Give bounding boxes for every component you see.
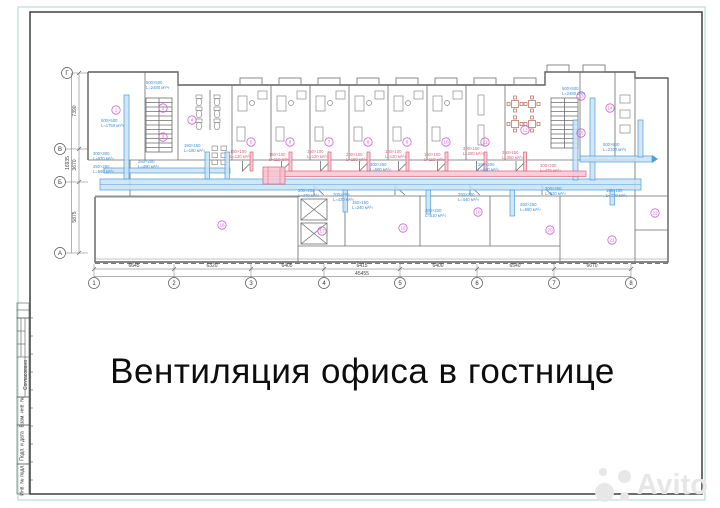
supply-duct-flow: L=2480 м³/ч <box>562 91 585 96</box>
ventilation-plan-svg: Согласовано Взам. инв. № Подп. и дата Ин… <box>0 0 720 508</box>
exhaust-duct-flow: L=110 м³/ч <box>424 157 444 162</box>
exhaust-duct-flow: L=470 м³/ч <box>540 168 561 173</box>
supply-duct-flow: L=2480 м³/ч <box>146 85 169 90</box>
supply-duct-flow: L=440 м³/ч <box>458 197 479 202</box>
page-title: Вентиляция офиса в гостнице <box>110 352 615 392</box>
room-number: 2 <box>162 106 165 111</box>
exhaust-duct-flow: L=120 м³/ч <box>307 154 328 159</box>
axis-markers: 12345678ГВБА <box>55 68 637 289</box>
dimension-value: 6645 <box>128 263 139 269</box>
supply-duct-flow: L=680 м³/ч <box>520 207 541 212</box>
stamp-label-agreed: Согласовано <box>23 360 29 390</box>
supply-duct-flow: L=440 м³/ч <box>478 167 499 172</box>
dimension-value: 3670 <box>72 159 78 170</box>
toilet-icon <box>214 119 220 130</box>
room-number: 10 <box>443 140 449 145</box>
stamp-label-cell-2: Инв. № подл. <box>20 464 26 495</box>
stamp-label-cell-0: Взам. инв. № <box>20 397 26 428</box>
drawing-sheet: Согласовано Взам. инв. № Подп. и дата Ин… <box>0 0 720 508</box>
room-number: 15 <box>578 131 584 136</box>
exhaust-duct-flow: L=110 м³/ч <box>269 157 289 162</box>
window-bays <box>240 65 605 85</box>
axis-letter: А <box>58 251 62 257</box>
duct-arrow-icon <box>652 155 658 163</box>
toilet-icon <box>196 95 202 106</box>
room-number: 4 <box>191 118 194 123</box>
room-number: 16 <box>219 223 225 228</box>
room-number: 1 <box>115 108 118 113</box>
room-number: 14 <box>607 106 613 111</box>
room-number: 7 <box>328 140 331 145</box>
supply-duct-flow: L=230 м³/ч <box>606 193 627 198</box>
meeting-table-icon <box>524 96 540 112</box>
toilet-icon <box>214 95 220 106</box>
room-number: 3 <box>162 135 165 140</box>
room-number: 20 <box>547 228 553 233</box>
toilet-icon <box>196 107 202 118</box>
supply-duct-flow: L=510 м³/ч <box>425 213 446 218</box>
supply-duct-flow: L=2100 м³/ч <box>603 147 626 152</box>
toilet-icon <box>196 119 202 130</box>
supply-duct-flow: L=470 м³/ч <box>298 193 319 198</box>
dimension-value: 6400 <box>432 263 443 269</box>
dimension-value: 5875 <box>72 211 78 222</box>
exhaust-duct-flow: L=120 м³/ч <box>230 154 251 159</box>
exhaust-fan-unit <box>263 167 285 184</box>
room-number: 5 <box>250 140 253 145</box>
avito-watermark: Avito <box>595 468 708 502</box>
toilet-icon <box>214 107 220 118</box>
dimension-value: 6405 <box>281 263 292 269</box>
room-number: 21 <box>609 238 615 243</box>
supply-duct-flow: L=1750 м³/ч <box>101 123 124 128</box>
exhaust-duct-flow: L=120 м³/ч <box>385 154 406 159</box>
shaft-boxes <box>301 199 327 244</box>
supply-duct-flow: L=490 м³/ч <box>138 164 159 169</box>
exhaust-duct-flow: L=150 м³/ч <box>346 157 367 162</box>
dimension-value: 6415 <box>356 263 367 269</box>
stamp-edge-ticks <box>31 318 34 480</box>
sheet-outer-border <box>18 7 705 500</box>
axis-letter: Б <box>58 180 62 186</box>
wc-fixtures <box>196 95 227 165</box>
supply-duct-flow: L=620 м³/ч <box>545 191 566 196</box>
supply-duct-flow: L=420 м³/ч <box>333 197 354 202</box>
exhaust-duct-flow: L=280 м³/ч <box>463 151 484 156</box>
room-number: 9 <box>406 140 409 145</box>
supply-duct-flow: L=180 м³/ч <box>184 148 205 153</box>
room-number: 17 <box>319 229 325 234</box>
dimension-total: 45455 <box>355 271 369 277</box>
supply-duct-flow: L=560 м³/ч <box>93 169 114 174</box>
room-number: 8 <box>367 140 370 145</box>
meeting-table-icon <box>507 96 523 112</box>
exhaust-duct-flow: L=350 м³/ч <box>502 155 523 160</box>
room-number: 19 <box>475 210 481 215</box>
avito-wordmark: Avito <box>637 471 708 500</box>
avito-logo-icon <box>595 468 633 502</box>
room-number: 22 <box>652 211 658 216</box>
supply-duct-flow: L=590 м³/ч <box>370 167 391 172</box>
dimension-value: 6670 <box>586 263 597 269</box>
supply-duct-flow: L=870 м³/ч <box>93 156 114 161</box>
room-number: 12 <box>522 128 528 133</box>
supply-duct-flow: L=240 м³/ч <box>352 205 373 210</box>
stamp-label-cell-1: Подп. и дата <box>20 431 26 461</box>
room-furniture <box>237 91 630 145</box>
dimension-value: 7390 <box>72 105 78 116</box>
room-number: 6 <box>289 140 292 145</box>
dimension-value: 6540 <box>509 263 520 269</box>
supply-ducts-blue <box>100 95 658 216</box>
axis-letter: В <box>58 147 62 153</box>
dimension-total: 16935 <box>65 156 71 170</box>
dimension-value: 6320 <box>206 263 217 269</box>
room-number: 18 <box>400 226 406 231</box>
room-number: 11 <box>483 140 488 145</box>
